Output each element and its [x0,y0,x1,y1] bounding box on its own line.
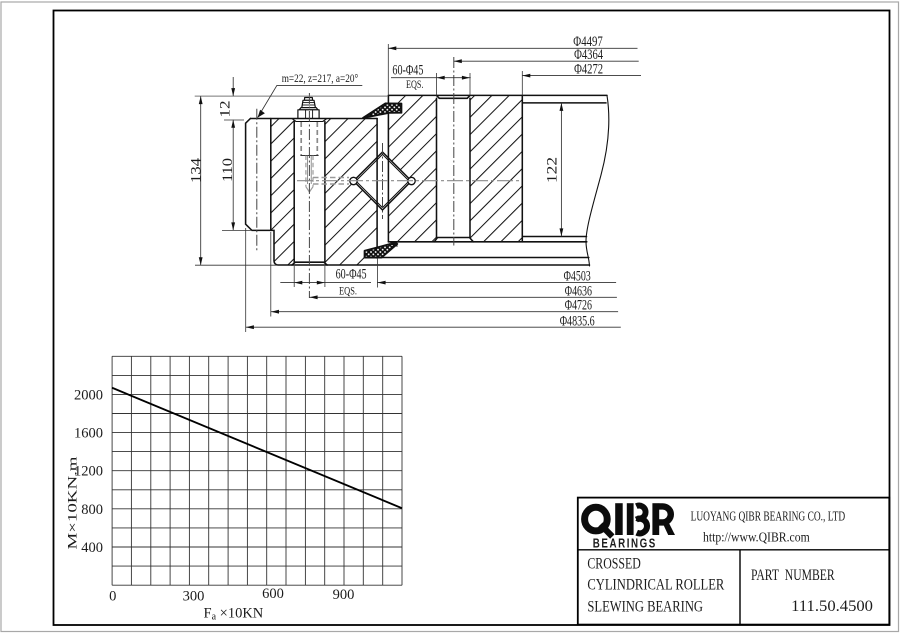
svg-text:CROSSED: CROSSED [587,556,640,573]
svg-text:M×10KN.m: M×10KN.m [66,456,80,549]
svg-text:600: 600 [262,586,284,602]
svg-text:Φ4272: Φ4272 [574,61,603,77]
svg-text:60-Φ45: 60-Φ45 [336,266,367,282]
svg-text:BEARINGS: BEARINGS [593,537,657,551]
svg-text:Φ4726: Φ4726 [565,298,592,314]
svg-text:m=22, z=217, a=20°: m=22, z=217, a=20° [282,73,359,85]
svg-text:Φ4503: Φ4503 [564,269,591,285]
svg-text:EQS.: EQS. [406,79,424,91]
svg-text:134: 134 [189,157,205,183]
svg-text:EQS.: EQS. [339,286,357,298]
svg-text:900: 900 [333,587,355,603]
svg-text:0: 0 [109,589,116,605]
svg-text:60-Φ45: 60-Φ45 [392,62,423,78]
svg-text:110: 110 [220,158,236,182]
svg-text:Φ4835.6: Φ4835.6 [560,313,595,329]
svg-text:1600: 1600 [74,426,103,442]
svg-text:http://www.QIBR.com: http://www.QIBR.com [703,531,810,546]
svg-text:111.50.4500: 111.50.4500 [791,598,873,615]
svg-text:PART NUMBER: PART NUMBER [751,567,835,584]
svg-text:CYLINDRICAL ROLLER: CYLINDRICAL ROLLER [587,577,724,594]
svg-text:122: 122 [545,157,561,183]
svg-text:300: 300 [183,589,205,605]
svg-text:SLEWING BEARING: SLEWING BEARING [587,598,703,615]
svg-text:400: 400 [81,540,103,556]
svg-text:LUOYANG QIBR BEARING CO., LTD: LUOYANG QIBR BEARING CO., LTD [691,510,846,525]
svg-text:2000: 2000 [74,387,103,403]
svg-text:12: 12 [218,101,234,118]
svg-text:800: 800 [81,502,103,518]
